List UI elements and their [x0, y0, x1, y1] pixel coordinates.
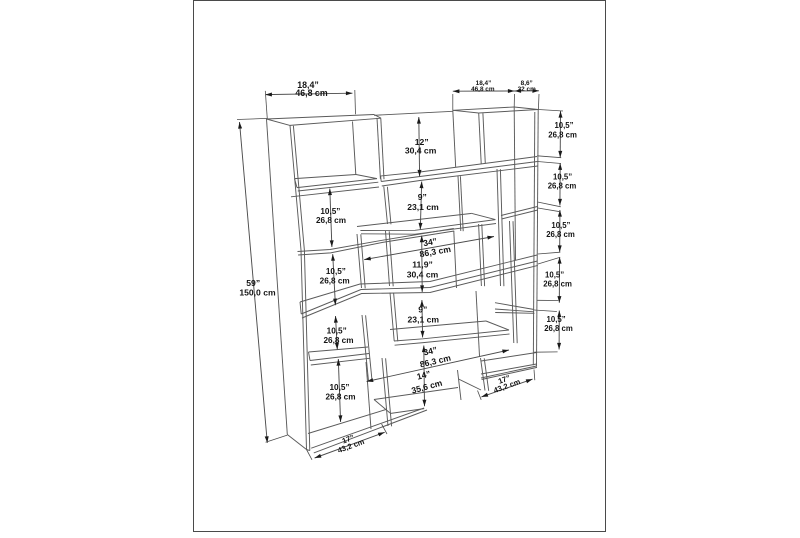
svg-text:22 cm: 22 cm — [518, 86, 536, 93]
svg-text:26,8 cm: 26,8 cm — [543, 280, 572, 289]
svg-text:10,5”: 10,5” — [551, 221, 570, 230]
svg-text:26,8 cm: 26,8 cm — [316, 216, 346, 225]
svg-text:26,8 cm: 26,8 cm — [323, 336, 353, 345]
svg-text:46,8 cm: 46,8 cm — [295, 88, 327, 98]
svg-text:10,5”: 10,5” — [327, 327, 347, 336]
svg-text:10,5”: 10,5” — [553, 173, 572, 182]
svg-text:26,8 cm: 26,8 cm — [320, 277, 350, 286]
svg-text:26,8 cm: 26,8 cm — [548, 182, 577, 191]
svg-text:11,9”: 11,9” — [412, 260, 433, 270]
svg-text:30,4 cm: 30,4 cm — [405, 146, 437, 156]
svg-text:150,0 cm: 150,0 cm — [239, 287, 276, 297]
svg-text:30,4 cm: 30,4 cm — [407, 270, 439, 280]
svg-text:26,8 cm: 26,8 cm — [544, 324, 573, 333]
svg-text:10,5”: 10,5” — [329, 383, 349, 392]
svg-text:10,5”: 10,5” — [326, 267, 346, 276]
svg-text:9”: 9” — [418, 192, 427, 202]
svg-text:23,1 cm: 23,1 cm — [407, 202, 439, 212]
svg-text:26,8 cm: 26,8 cm — [548, 130, 577, 139]
svg-text:10,5”: 10,5” — [320, 207, 340, 216]
svg-text:10,5”: 10,5” — [554, 121, 573, 130]
svg-text:9”: 9” — [418, 304, 427, 314]
svg-text:26,8 cm: 26,8 cm — [325, 392, 355, 401]
svg-text:23,1 cm: 23,1 cm — [408, 314, 440, 324]
svg-text:10,5”: 10,5” — [545, 271, 564, 280]
svg-text:46,8 cm: 46,8 cm — [471, 86, 495, 93]
svg-text:26,8 cm: 26,8 cm — [546, 230, 575, 239]
svg-text:10,5”: 10,5” — [547, 315, 566, 324]
